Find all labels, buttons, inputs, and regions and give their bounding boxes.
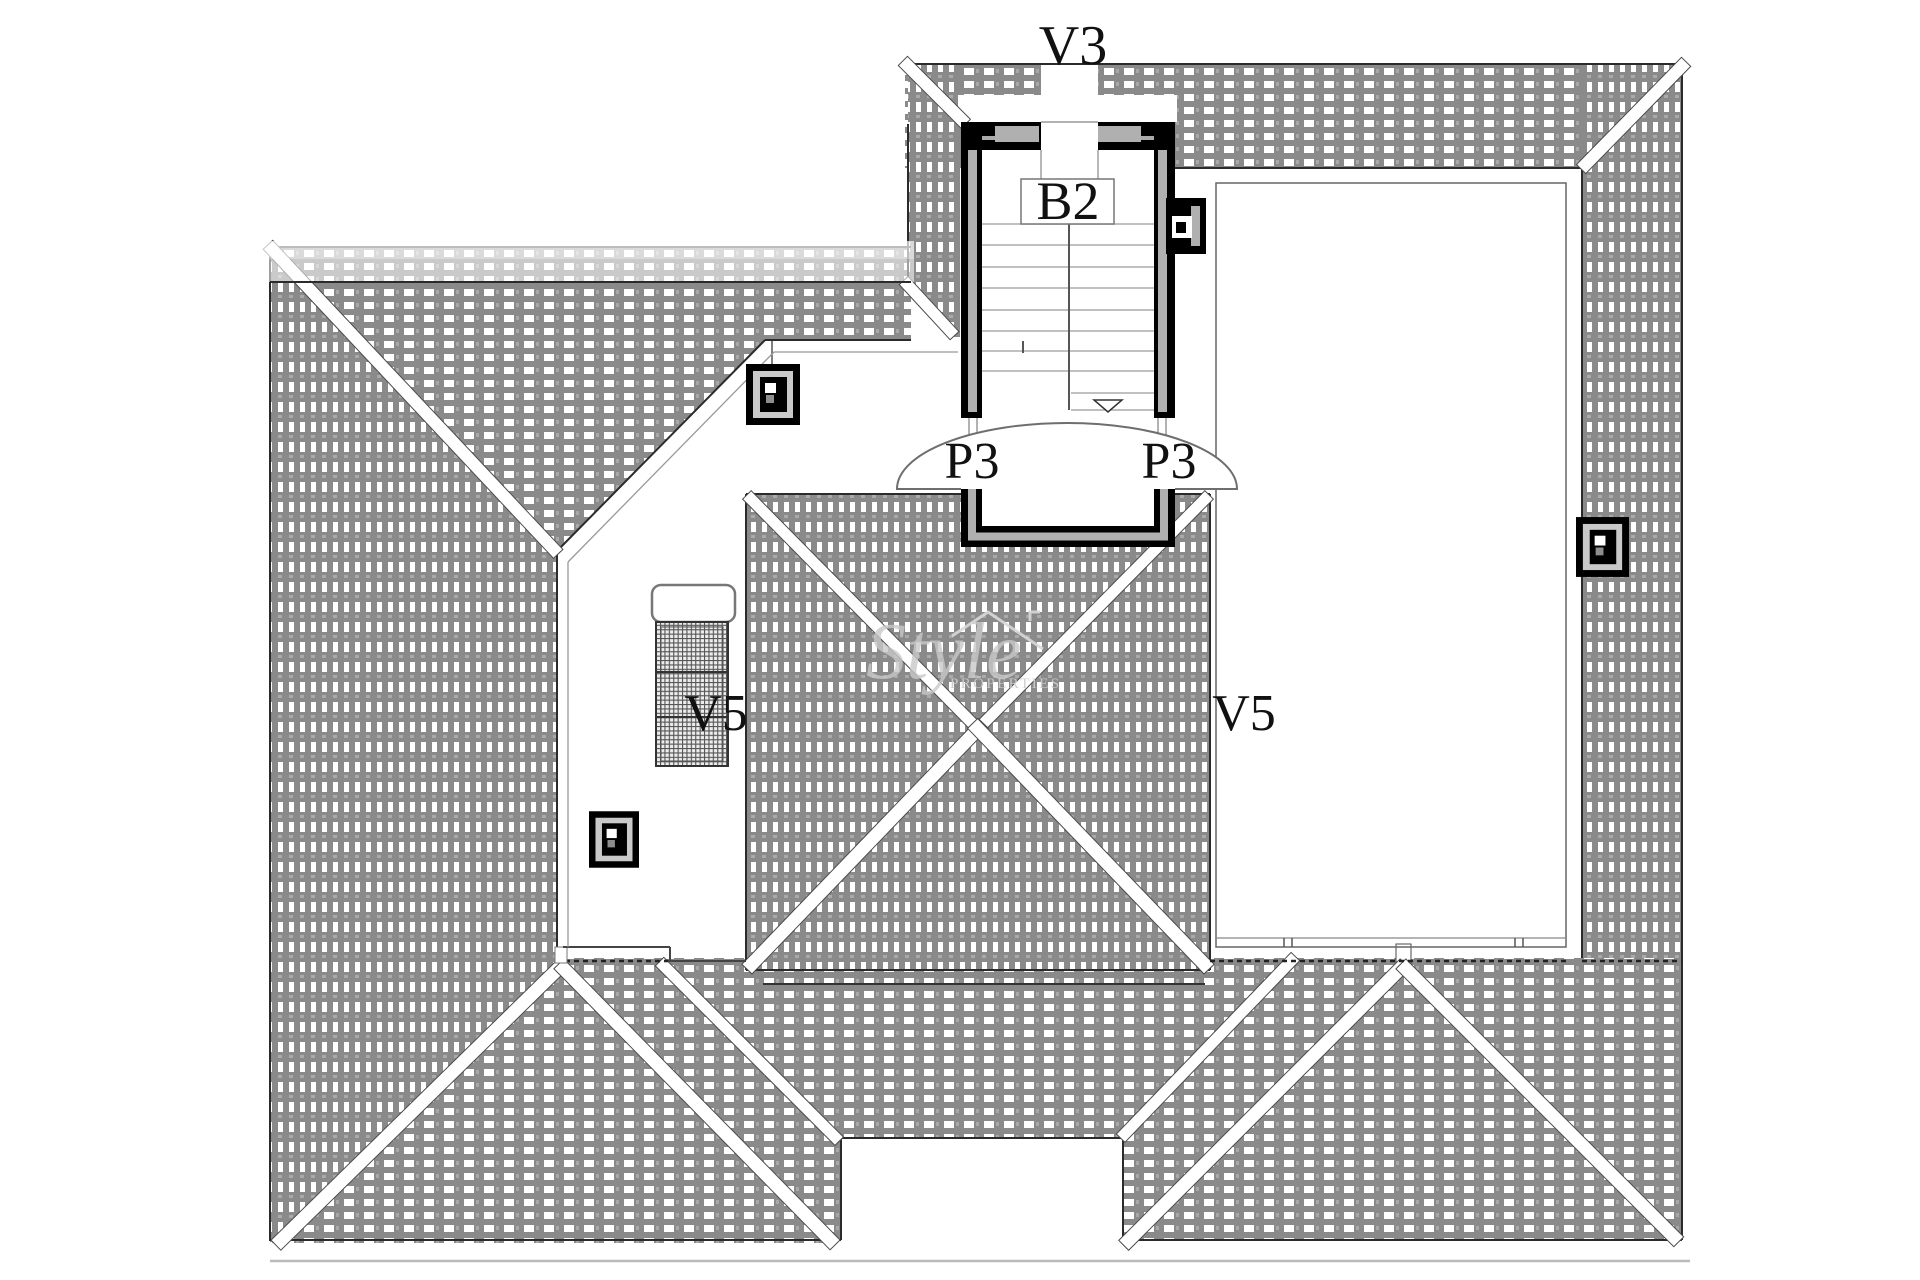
svg-text:V5: V5 (684, 685, 748, 742)
svg-text:B2: B2 (1036, 171, 1099, 231)
svg-text:PROPERTIES: PROPERTIES (950, 676, 1061, 692)
svg-text:P3: P3 (1142, 433, 1197, 490)
svg-text:V3: V3 (1039, 15, 1107, 77)
svg-text:V5: V5 (1212, 685, 1276, 742)
svg-text:P3: P3 (945, 433, 1000, 490)
